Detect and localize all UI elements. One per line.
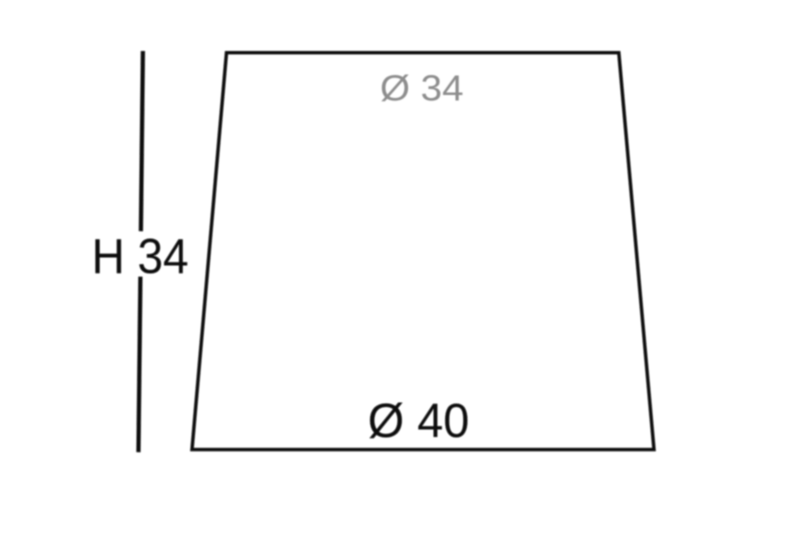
svg-text:H 34: H 34 [92,229,189,284]
svg-text:Ø 34: Ø 34 [380,68,464,109]
svg-text:Ø 40: Ø 40 [368,395,470,448]
